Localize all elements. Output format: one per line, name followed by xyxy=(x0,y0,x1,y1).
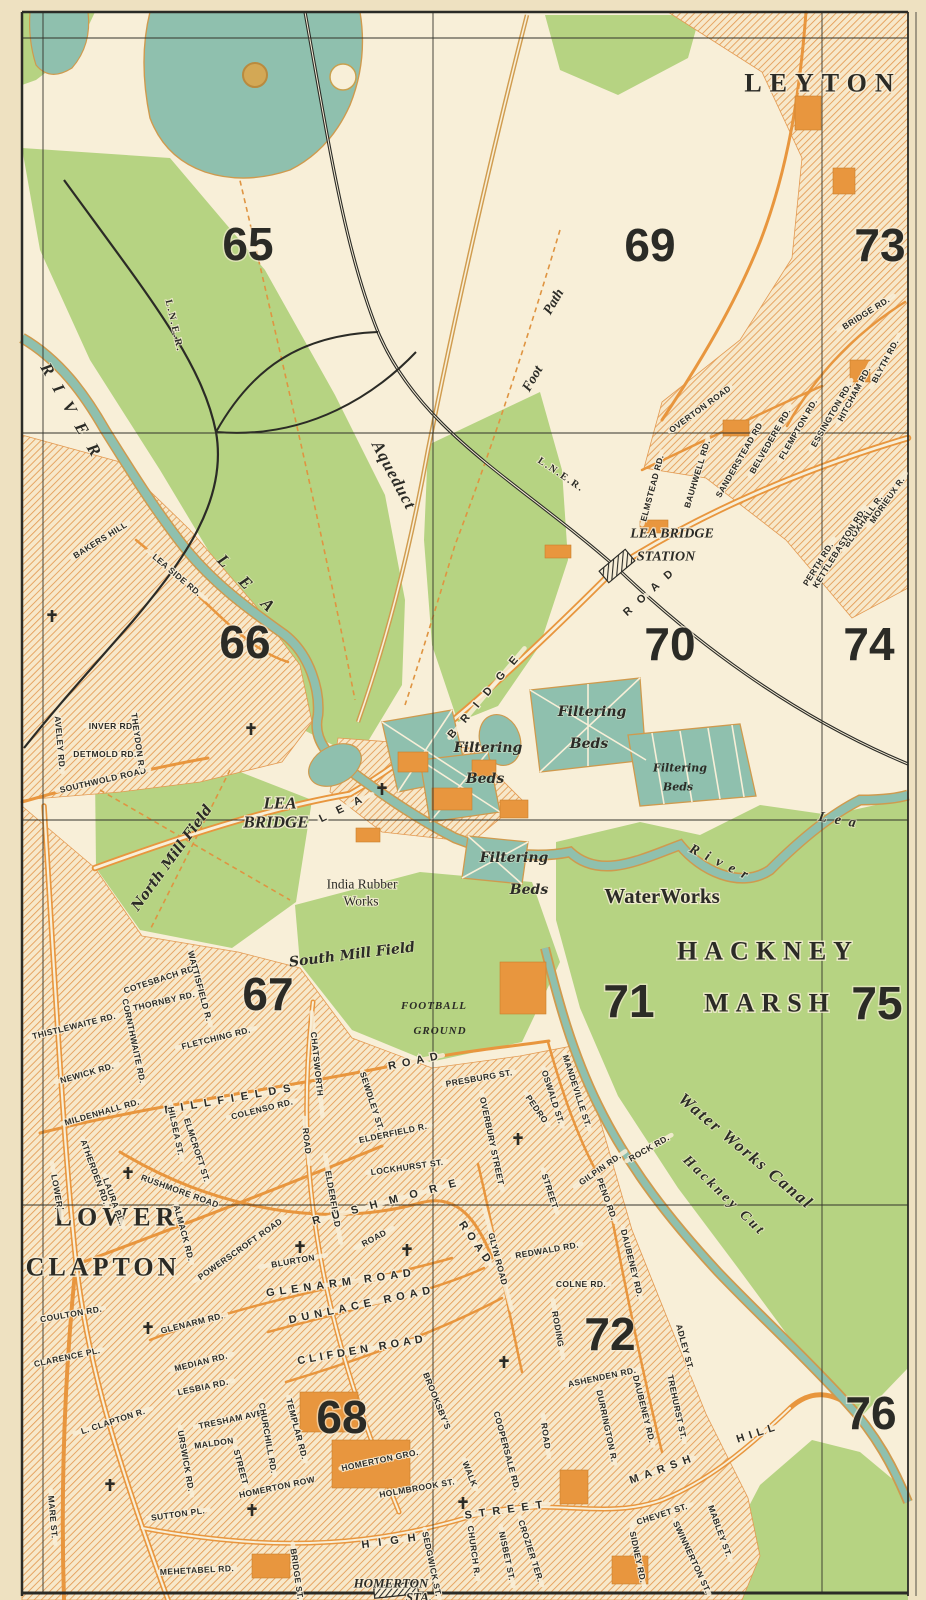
field-label: GROUND xyxy=(413,1025,466,1037)
field-label: Filtering xyxy=(479,850,549,866)
map-svg: LEYTONHACKNEYMARSHLOWERCLAPTON6569736670… xyxy=(0,0,926,1600)
grid-number: 75 xyxy=(851,977,902,1029)
place-label: Works xyxy=(344,894,379,909)
field-label: Beds xyxy=(465,771,505,787)
field-label: FOOTBALL xyxy=(400,1000,467,1012)
place-label: BRIDGE xyxy=(242,813,308,832)
island xyxy=(243,63,267,87)
grid-number: 73 xyxy=(854,219,905,271)
grid-number: 69 xyxy=(624,219,675,271)
place-label: LEA BRIDGE xyxy=(629,527,714,542)
town-label: MARSH xyxy=(704,989,836,1018)
grid-number: 70 xyxy=(644,618,695,670)
grid-number: 71 xyxy=(603,975,654,1027)
town-label: HACKNEY xyxy=(677,937,859,966)
field-label: Beds xyxy=(509,882,549,898)
grid-number: 74 xyxy=(843,618,895,670)
field-label: Beds xyxy=(662,781,693,794)
field-label: Filtering xyxy=(557,704,627,720)
place-label: STA. xyxy=(406,1590,432,1600)
place-label: WaterWorks xyxy=(604,884,720,908)
grid-number: 65 xyxy=(222,218,273,270)
island xyxy=(330,64,356,90)
grid-number: 76 xyxy=(845,1387,896,1439)
place-label: LEA xyxy=(262,794,296,813)
grid-number: 66 xyxy=(219,616,270,668)
street-label: INVER RD. xyxy=(89,721,136,731)
street-label: DETMOLD RD. xyxy=(73,749,136,759)
grid-number: 67 xyxy=(242,968,293,1020)
town-label: CLAPTON xyxy=(26,1253,181,1282)
map-canvas: LEYTONHACKNEYMARSHLOWERCLAPTON6569736670… xyxy=(0,0,926,1600)
grid-number: 72 xyxy=(584,1308,635,1360)
field-label: Beds xyxy=(569,736,609,752)
field-label: Filtering xyxy=(453,740,523,756)
street-label: COLNE RD. xyxy=(556,1279,606,1289)
town-label: LEYTON xyxy=(744,69,901,98)
place-label: HOMERTON xyxy=(353,1576,429,1591)
grid-number: 68 xyxy=(316,1391,367,1443)
field-label: Filtering xyxy=(652,762,707,775)
place-label: India Rubber xyxy=(327,877,398,892)
place-label: STATION xyxy=(637,550,696,565)
